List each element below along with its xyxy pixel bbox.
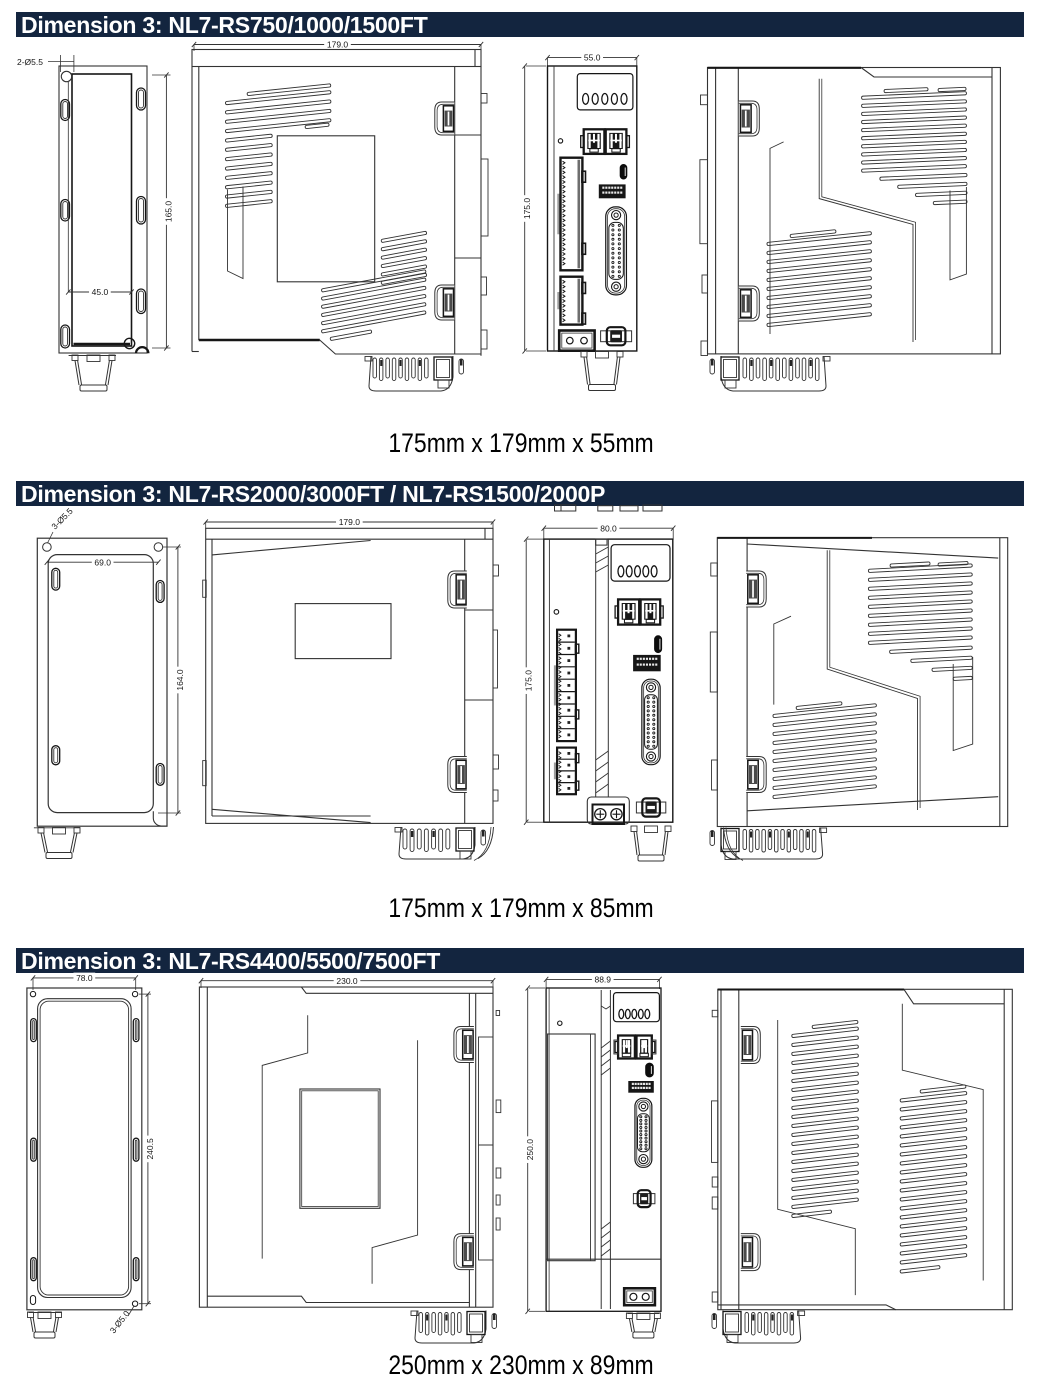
svg-text:69.0: 69.0 bbox=[94, 557, 111, 567]
svg-text:240.5: 240.5 bbox=[145, 1138, 155, 1160]
svg-text:2-Ø5.5: 2-Ø5.5 bbox=[17, 57, 43, 67]
svg-text:175.0: 175.0 bbox=[524, 670, 534, 692]
svg-text:3-Ø5.5: 3-Ø5.5 bbox=[49, 506, 75, 532]
svg-text:230.0: 230.0 bbox=[336, 976, 358, 986]
svg-text:250.0: 250.0 bbox=[525, 1139, 535, 1161]
svg-text:88.9: 88.9 bbox=[594, 974, 611, 984]
svg-text:165.0: 165.0 bbox=[164, 201, 174, 223]
svg-text:45.0: 45.0 bbox=[92, 287, 109, 297]
svg-text:80.0: 80.0 bbox=[600, 523, 617, 533]
svg-text:175.0: 175.0 bbox=[522, 198, 532, 220]
svg-text:78.0: 78.0 bbox=[76, 973, 93, 983]
svg-text:179.0: 179.0 bbox=[327, 40, 349, 50]
svg-text:164.0: 164.0 bbox=[175, 669, 185, 691]
svg-text:179.0: 179.0 bbox=[339, 517, 361, 527]
svg-text:55.0: 55.0 bbox=[584, 53, 601, 63]
svg-text:3-Ø5.0: 3-Ø5.0 bbox=[108, 1308, 132, 1335]
